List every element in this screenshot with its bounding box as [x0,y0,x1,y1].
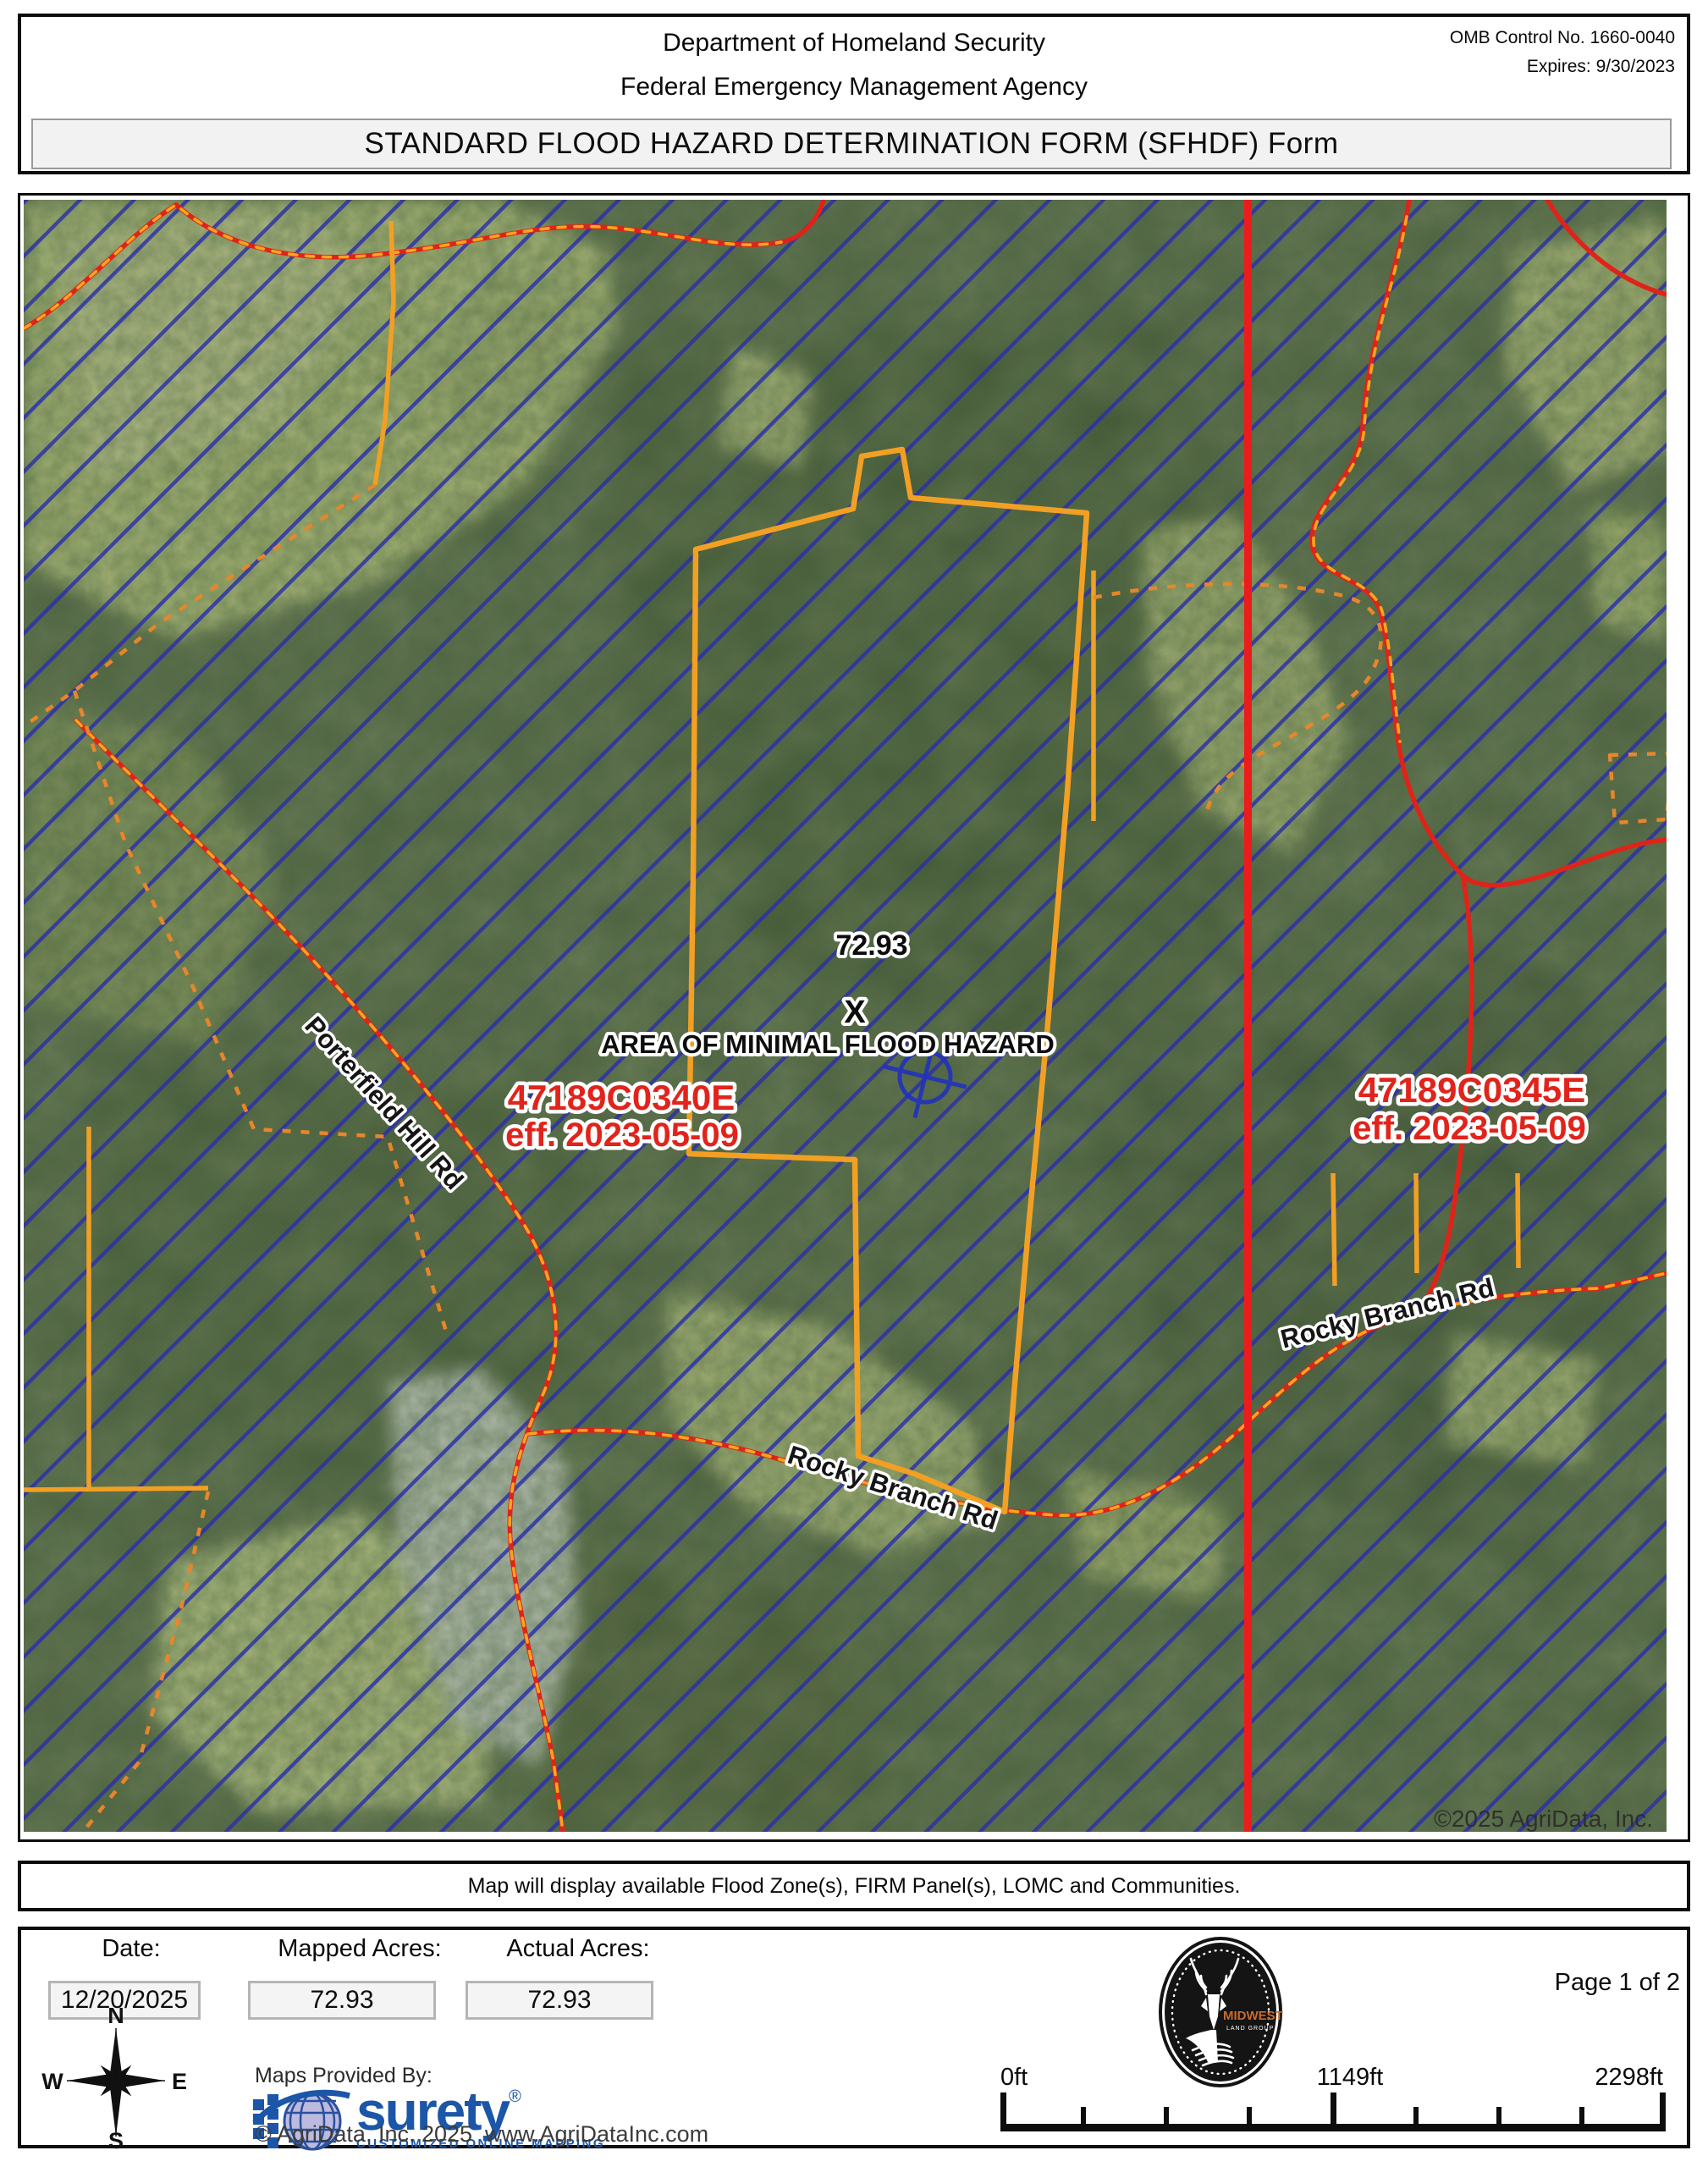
agency-line-2: Federal Emergency Management Agency [21,73,1687,102]
sfhdf-page: { "header": { "agency_line1": "Departmen… [0,0,1708,2167]
date-label: Date: [68,1935,195,1963]
map-notice-text: Map will display available Flood Zone(s)… [468,1874,1241,1899]
compass-e: E [172,2069,187,2094]
page-indicator: Page 1 of 2 [1511,1969,1680,1997]
firm-panel-eff-left: eff. 2023-05-09 [505,1117,739,1154]
footer-website: www.AgriDataInc.com [485,2121,708,2148]
agency-line-1: Department of Homeland Security [21,29,1687,58]
compass-w: W [41,2069,63,2094]
form-footer: Date: 12/20/2025 Mapped Acres: 72.93 Act… [18,1927,1690,2148]
flood-zone-label: AREA OF MINIMAL FLOOD HAZARD [601,1029,1055,1059]
omb-control-number: OMB Control No. 1660-0040 [1450,24,1675,52]
deer-badge-sub: LAND GROUP [1226,2026,1274,2032]
omb-expires: Expires: 9/30/2023 [1450,52,1675,81]
firm-panel-boundary-line [1244,200,1252,1832]
firm-panel-id-right: 47189C0345E [1358,1070,1586,1110]
surety-registered-mark: ® [509,2087,521,2106]
compass-s: S [108,2128,124,2150]
firm-panel-id-left: 47189C0340E [508,1078,736,1117]
footer-copyright: © AgriData, Inc. 2025 [255,2121,472,2148]
mapped-acres-label: Mapped Acres: [258,1935,461,1963]
mapped-acres-field[interactable]: 72.93 [248,1981,436,2020]
map-scale-bar [1000,2093,1666,2131]
scale-start-label: 0ft [1000,2064,1028,2092]
compass-n: N [107,2008,124,2028]
omb-control-block: OMB Control No. 1660-0040 Expires: 9/30/… [1450,24,1675,81]
parcel-acres-label: 72.93 [835,929,907,962]
form-title: STANDARD FLOOD HAZARD DETERMINATION FORM… [31,119,1672,169]
flood-map-panel: 72.93 X AREA OF MINIMAL FLOOD HAZARD 471… [18,193,1690,1842]
scale-mid-label: 1149ft [1265,2064,1435,2092]
actual-acres-label: Actual Acres: [485,1935,671,1963]
scale-end-label: 2298ft [1579,2064,1663,2092]
deer-badge-brand: MIDWEST [1223,2009,1283,2023]
map-notice-bar: Map will display available Flood Zone(s)… [18,1861,1690,1911]
aerial-flood-map[interactable]: 72.93 X AREA OF MINIMAL FLOOD HAZARD 471… [24,200,1667,1832]
form-header: Department of Homeland Security Federal … [18,14,1690,174]
actual-acres-field[interactable]: 72.93 [466,1981,653,2020]
map-copyright: ©2025 AgriData, Inc. [1434,1806,1653,1832]
firm-panel-eff-right: eff. 2023-05-09 [1353,1110,1586,1147]
compass-rose-icon: N S W E [41,2008,190,2150]
flood-zone-marker: X [844,995,866,1030]
